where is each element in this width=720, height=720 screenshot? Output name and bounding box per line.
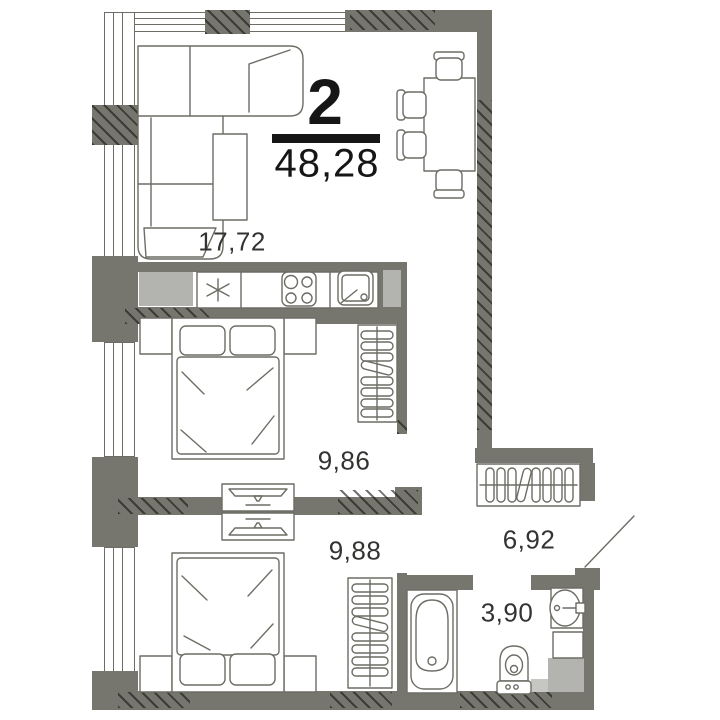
area-label-bathroom: 3,90 xyxy=(481,598,534,629)
cabinet-icon xyxy=(553,632,583,658)
double-bed-icon xyxy=(140,318,316,459)
chair-icon xyxy=(397,90,426,120)
furniture-layer xyxy=(0,0,720,720)
entrance-door-icon xyxy=(585,516,634,567)
area-label-living-kitchen: 17,72 xyxy=(198,227,266,258)
area-label-bedroom-1: 9,86 xyxy=(318,446,371,477)
double-bed-icon xyxy=(140,553,316,692)
dining-table-icon xyxy=(424,78,475,171)
toilet-icon xyxy=(497,646,531,694)
wardrobe-icon xyxy=(348,578,392,688)
wardrobe-icon xyxy=(358,325,397,422)
total-area: 48,28 xyxy=(274,142,379,187)
washbasin-icon xyxy=(550,588,585,628)
area-label-hallway: 6,92 xyxy=(503,525,556,556)
stove-icon xyxy=(282,272,316,306)
coffee-table-icon xyxy=(213,134,247,220)
kitchen-sink-icon xyxy=(338,271,373,305)
tv-icon xyxy=(222,513,294,540)
chair-icon xyxy=(434,52,464,80)
area-label-bedroom-2: 9,88 xyxy=(329,536,382,567)
chair-icon xyxy=(397,130,426,160)
closet-icon xyxy=(477,464,580,506)
tv-icon xyxy=(222,484,294,511)
chair-icon xyxy=(434,170,464,198)
floor-plan: 2 48,28 17,72 9,86 9,88 6,92 3,90 xyxy=(0,0,720,720)
bathtub-icon xyxy=(407,590,457,693)
rooms-count: 2 xyxy=(307,65,343,139)
